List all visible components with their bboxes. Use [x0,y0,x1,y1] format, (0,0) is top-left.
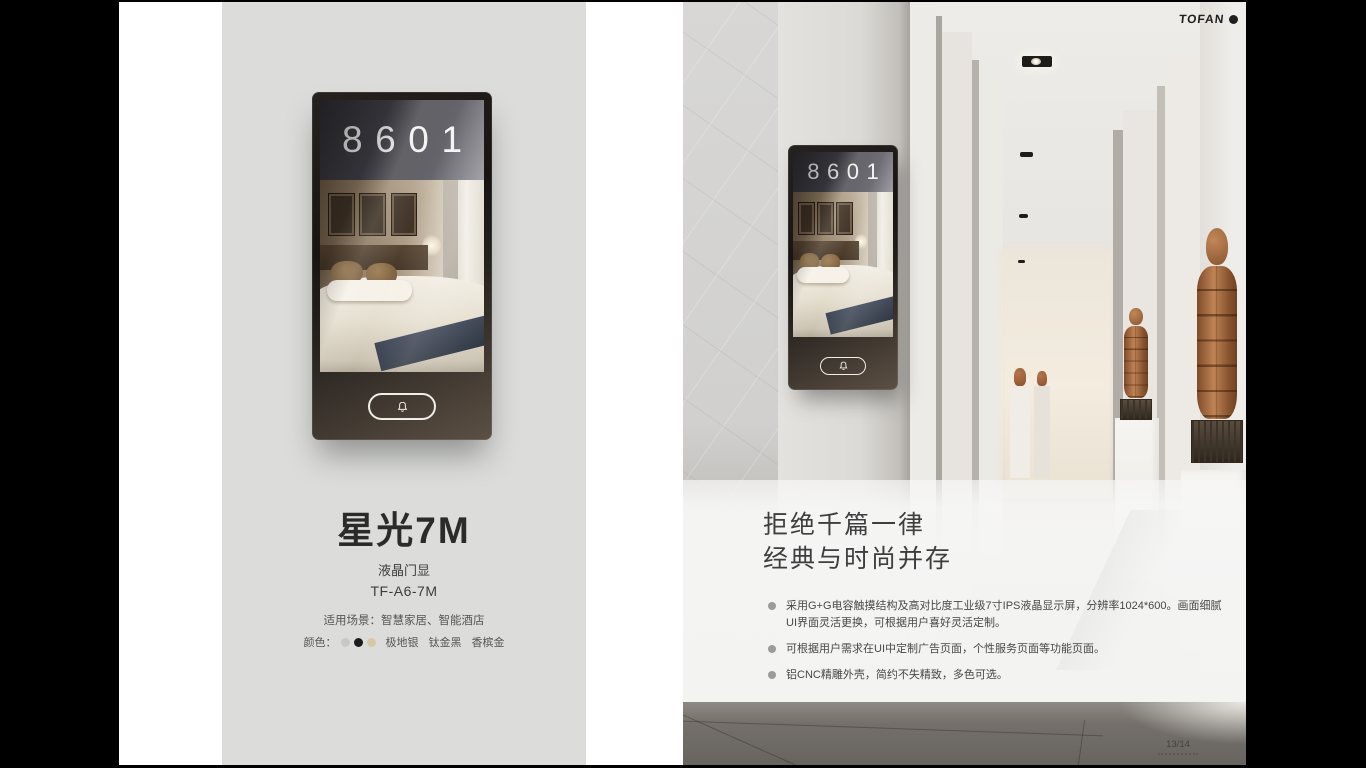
wood-sculpture-near [1189,228,1245,474]
scene-text: 适用场景：智慧家居、智能酒店 [222,612,586,628]
bust-pedestal [1010,386,1030,478]
room-number: 8601 [329,119,474,161]
white-pillows [327,280,412,301]
bullet-text: 铝CNC精雕外壳，简约不失精致，多色可选。 [786,667,1008,684]
picture-frame [391,193,418,235]
feature-bullets: 采用G+G电容触摸结构及高对比度工业级7寸IPS液晶显示屏，分辨率1024*60… [768,598,1226,693]
sculpture-base [1120,399,1152,421]
bust-pedestal [1034,386,1050,478]
bullet-item: 铝CNC精雕外壳，简约不失精致，多色可选。 [768,667,1226,684]
brand-logo: TOFAN [1179,12,1238,26]
logo-text: TOFAN [1178,12,1225,26]
colors-label: 颜色： [304,634,337,650]
bullet-text: 采用G+G电容触摸结构及高对比度工业级7寸IPS液晶显示屏，分辨率1024*60… [786,598,1226,632]
sculpture-base [1191,420,1242,464]
hallway-floor [683,702,1246,765]
device-screen: 8601 [320,100,484,372]
headline-line1: 拒绝千篇一律 [763,508,952,542]
room-number-band: 8601 [320,100,484,180]
headline-line2: 经典与时尚并存 [763,542,952,576]
color-name-silver: 极地银 [386,634,419,650]
floor-seam [683,721,1103,737]
left-page: 8601 [119,2,683,765]
bullet-item: 采用G+G电容触摸结构及高对比度工业级7寸IPS液晶显示屏，分辨率1024*60… [768,598,1226,632]
picture-frame [328,193,355,235]
ceiling-light [1020,152,1033,157]
white-pillows [797,267,849,283]
bullet-dot-icon [768,602,776,610]
doorbell-button [368,393,436,420]
page-number-text: 13/14 [1158,739,1198,750]
floor-seam [1078,720,1085,765]
sculpture-head [1129,308,1143,325]
colors-row: 颜色： 极地银 钛金黑 香槟金 [222,634,586,650]
device-screen: 8601 [793,152,893,337]
sculpture-bust [1014,368,1026,386]
sculpture-body [1124,326,1148,398]
sculpture-body [1197,266,1237,419]
color-swatch-silver [341,638,350,647]
headline: 拒绝千篇一律 经典与时尚并存 [763,508,952,576]
sculpture-bust [1037,371,1047,386]
product-model: TF-A6-7M [222,583,586,599]
bullet-dot-icon [768,671,776,679]
logo-dot-icon [1229,15,1238,24]
doorbell-button [820,357,866,375]
color-swatch-black [354,638,363,647]
bullet-dot-icon [768,645,776,653]
floor-seam [683,710,810,765]
picture-frame [798,202,815,234]
door-display-device-left: 8601 [312,92,492,440]
door-display-device-right: 8601 [788,145,898,390]
page-number: 13/14 [1158,739,1198,755]
picture-frame [836,202,853,234]
bullet-item: 可根据用户需求在UI中定制广告页面，个性服务页面等功能页面。 [768,641,1226,658]
color-swatch-gold [367,638,376,647]
bedroom-photo [793,192,893,337]
brochure-spread: 8601 [0,0,1366,768]
bell-icon [397,401,408,413]
page-number-dots [1158,753,1198,755]
bullet-text: 可根据用户需求在UI中定制广告页面，个性服务页面等功能页面。 [786,641,1105,658]
room-number-band: 8601 [793,152,893,192]
picture-frame [359,193,386,235]
bedroom-photo [320,180,484,372]
color-name-black: 钛金黑 [429,634,462,650]
color-name-gold: 香槟金 [472,634,505,650]
bell-icon [839,361,848,371]
right-page: 8601 [683,2,1246,765]
ceiling-light [1022,56,1052,67]
sculpture-head [1206,228,1228,265]
picture-frame [817,202,834,234]
ceiling-light [1018,260,1025,263]
wood-sculpture-far [1119,308,1153,424]
product-type: 液晶门显 [222,560,586,579]
room-number: 8601 [800,159,886,185]
ceiling-light [1019,214,1028,218]
product-name: 星光7M [222,500,586,554]
